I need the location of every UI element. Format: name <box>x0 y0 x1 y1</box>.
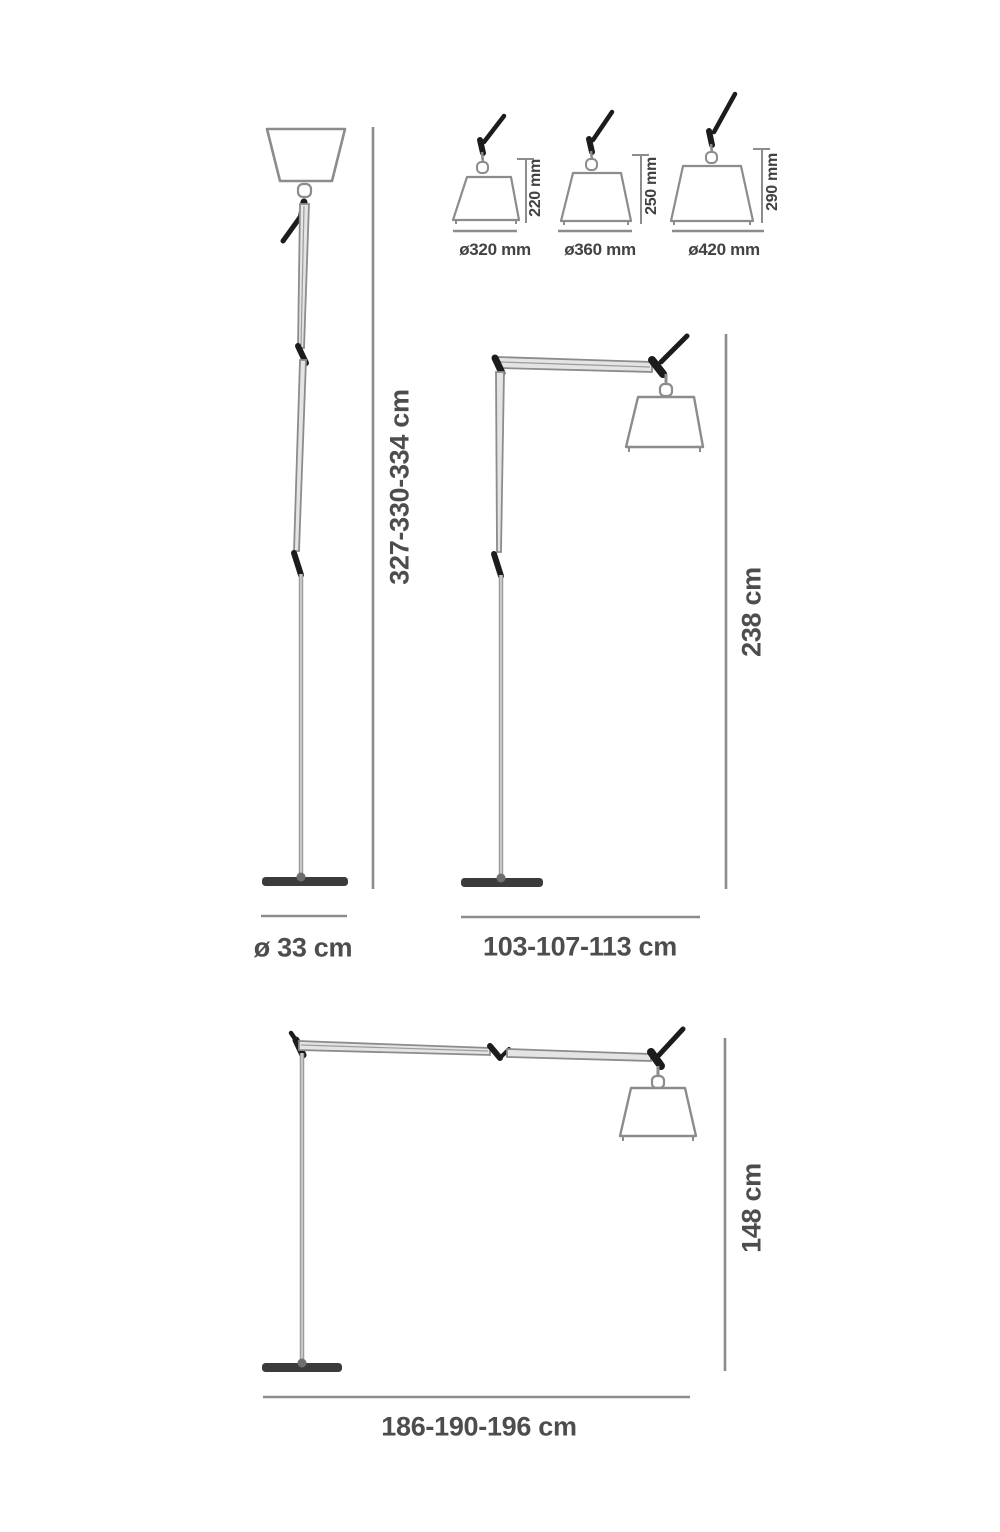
shade-medium-joint <box>589 139 592 152</box>
long-lamp-mid-joint-a <box>490 1046 500 1058</box>
medium-lamp-elbow-joint <box>494 554 501 576</box>
medium-lamp-shade-mount <box>660 384 672 396</box>
long-lamp-reach-label: 186-190-196 cm <box>381 1412 576 1443</box>
shade-small-height-label: 220 mm <box>527 159 545 217</box>
long-lamp-shade-mount <box>652 1076 664 1088</box>
medium-lamp-base-hub <box>497 874 506 883</box>
shade-small-outline <box>453 177 519 220</box>
shade-small-lever <box>484 116 504 142</box>
torchiere-floor-lamp-drawing <box>262 129 348 886</box>
diagram-linework <box>0 0 1000 1532</box>
long-lamp-shade <box>620 1088 696 1136</box>
long-lamp-height-label: 148 cm <box>737 1163 768 1253</box>
shade-variant-small <box>453 116 534 231</box>
long-lamp-arm-second <box>507 1049 651 1061</box>
long-lamp-base-hub <box>298 1359 307 1368</box>
shade-medium-lever <box>593 112 612 140</box>
medium-lamp-height-label: 238 cm <box>737 567 768 657</box>
medium-lamp-shade <box>626 397 703 447</box>
shade-large-lever <box>714 94 735 132</box>
torchiere-lever <box>283 216 301 241</box>
long-lamp-lever <box>659 1029 683 1055</box>
shade-large-outline <box>671 166 753 221</box>
mega-floor-lamp-medium-drawing <box>461 336 703 887</box>
shade-variant-medium <box>558 112 649 231</box>
shade-small-joint <box>480 140 483 153</box>
medium-lamp-reach-label: 103-107-113 cm <box>483 932 677 963</box>
shade-medium-outline <box>561 173 631 221</box>
torchiere-elbow-joint <box>294 553 301 575</box>
shade-large-diameter-label: ø420 mm <box>688 240 760 260</box>
torchiere-base-diameter-label: ø 33 cm <box>254 933 352 964</box>
shade-medium-mount <box>586 159 597 170</box>
shade-small-diameter-label: ø320 mm <box>459 240 531 260</box>
mega-floor-lamp-long-drawing <box>262 1029 696 1372</box>
shade-medium-diameter-label: ø360 mm <box>564 240 636 260</box>
shade-large-joint <box>709 131 712 145</box>
shade-variant-large <box>671 94 770 231</box>
torchiere-base-hub <box>297 873 306 882</box>
shade-large-height-label: 290 mm <box>764 153 782 211</box>
medium-lamp-lever <box>661 336 687 362</box>
torchiere-mid-arm <box>294 360 306 551</box>
torchiere-shade-mount <box>298 184 311 197</box>
shade-medium-height-label: 250 mm <box>643 157 661 215</box>
lamp-dimension-diagram: 327-330-334 cm ø 33 cm 220 mm 250 mm 290… <box>0 0 1000 1532</box>
medium-lamp-upper-pole <box>496 372 504 552</box>
torchiere-height-label: 327-330-334 cm <box>385 389 416 584</box>
torchiere-shade <box>267 129 345 181</box>
shade-small-mount <box>477 162 488 173</box>
shade-large-mount <box>706 152 717 163</box>
